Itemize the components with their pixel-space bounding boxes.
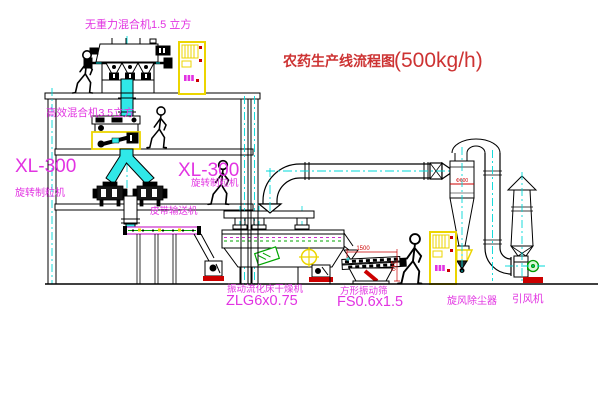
drawing-canvas: 农药生产线流程图 (500kg/h) 无重力混合机1.5 立方 高效混合机3.5… <box>0 0 600 403</box>
dim-sieve-height: 240 <box>389 261 395 272</box>
vibratory-feeder <box>203 261 224 281</box>
control-cabinet-lower <box>430 232 456 284</box>
drawing-title: 农药生产线流程图 (500kg/h) <box>282 49 483 72</box>
granulator-left <box>93 182 127 206</box>
granulator-right <box>133 182 167 206</box>
label-fan: 引风机 <box>512 292 544 305</box>
title-capacity: (500kg/h) <box>394 49 483 72</box>
gravity-free-mixer <box>84 38 172 93</box>
exhaust-duct <box>259 162 458 213</box>
title-text: 农药生产线流程图 <box>282 53 395 69</box>
label-cyclone: 旋风除尘器 <box>447 294 497 307</box>
high-efficiency-mixer <box>92 116 140 149</box>
dim-sieve-length: 1500 <box>356 246 370 252</box>
exhaust-downpipe <box>483 150 514 281</box>
label-dryer-model: ZLG6x0.75 <box>226 293 298 309</box>
label-high-efficiency-mixer: 高效混合机3.5立方 <box>46 106 134 119</box>
control-cabinet-upper <box>179 42 205 94</box>
label-sieve-model: FS0.6x1.5 <box>337 294 403 310</box>
person-figure-top-floor <box>73 51 93 93</box>
belt-conveyor <box>123 226 214 284</box>
dim-cyclone-note: Φ600 <box>456 178 469 184</box>
label-granulator-right-name: 旋转制粒机 <box>191 177 239 189</box>
label-granulator-left-model: XL-300 <box>15 156 76 177</box>
label-belt-conveyor: 皮带输送机 <box>150 205 198 217</box>
mixer-hoppers <box>106 63 154 79</box>
granulator-discharge-pipe <box>121 196 140 227</box>
label-gravity-mixer: 无重力混合机1.5 立方 <box>85 17 191 31</box>
process-flow-drawing: 农药生产线流程图 (500kg/h) 无重力混合机1.5 立方 高效混合机3.5… <box>0 0 600 403</box>
person-figure-second-floor <box>147 107 166 148</box>
label-granulator-left-name: 旋转制粒机 <box>15 186 65 199</box>
